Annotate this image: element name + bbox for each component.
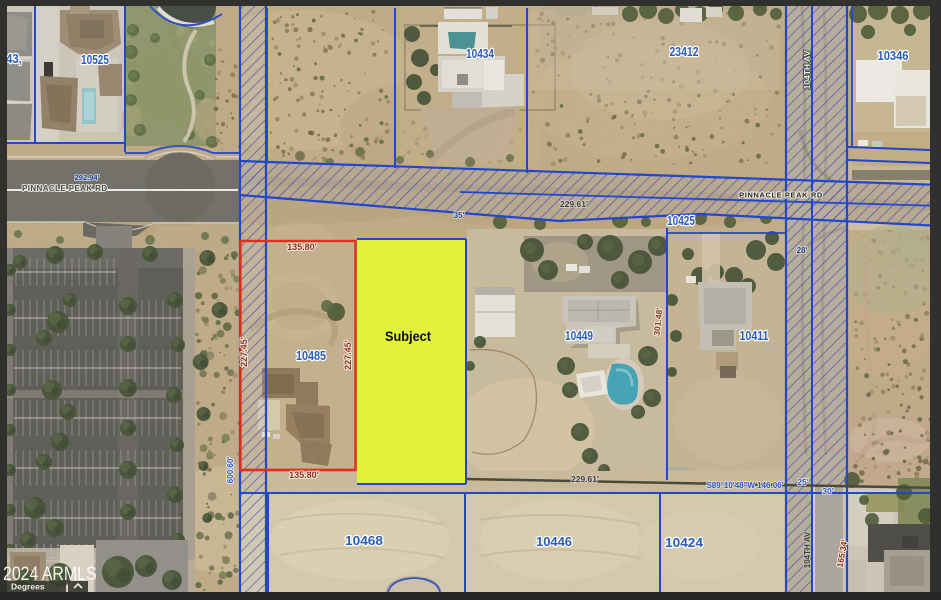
- svg-text:229.61': 229.61': [560, 199, 588, 209]
- svg-text:35': 35': [454, 211, 465, 220]
- svg-text:292.94': 292.94': [75, 173, 100, 182]
- svg-text:10425: 10425: [667, 214, 695, 228]
- svg-text:104TH AV: 104TH AV: [803, 531, 812, 568]
- svg-text:227.45': 227.45': [239, 337, 249, 367]
- svg-text:104TH AV: 104TH AV: [802, 50, 812, 89]
- svg-text:10411: 10411: [740, 329, 769, 343]
- svg-text:PINNACLE PEAK RD: PINNACLE PEAK RD: [739, 191, 823, 200]
- svg-text:600.60': 600.60': [226, 457, 235, 483]
- svg-text:229.61': 229.61': [571, 474, 599, 484]
- svg-text:10468: 10468: [345, 534, 383, 548]
- svg-text:10346: 10346: [878, 49, 909, 63]
- svg-text:23412: 23412: [670, 45, 699, 59]
- svg-text:S89°10'48"W 146.06': S89°10'48"W 146.06': [706, 481, 783, 490]
- svg-text:10485: 10485: [296, 349, 326, 363]
- svg-text:135.80': 135.80': [289, 470, 319, 480]
- svg-text:135.80': 135.80': [287, 242, 317, 252]
- svg-text:25': 25': [797, 477, 808, 487]
- svg-text:227.45': 227.45': [343, 340, 353, 370]
- svg-text:10525: 10525: [81, 53, 109, 67]
- svg-text:10424: 10424: [665, 536, 703, 550]
- svg-text:10449: 10449: [565, 329, 593, 343]
- svg-text:10434: 10434: [466, 47, 494, 61]
- svg-text:28': 28': [797, 246, 808, 255]
- svg-text:30': 30': [822, 486, 833, 496]
- svg-text:10446: 10446: [536, 535, 572, 549]
- svg-text:43,: 43,: [6, 52, 22, 66]
- svg-text:Degrees: Degrees: [11, 582, 45, 592]
- svg-text:Subject: Subject: [385, 328, 431, 344]
- svg-text:PINNACLE PEAK RD: PINNACLE PEAK RD: [22, 184, 108, 193]
